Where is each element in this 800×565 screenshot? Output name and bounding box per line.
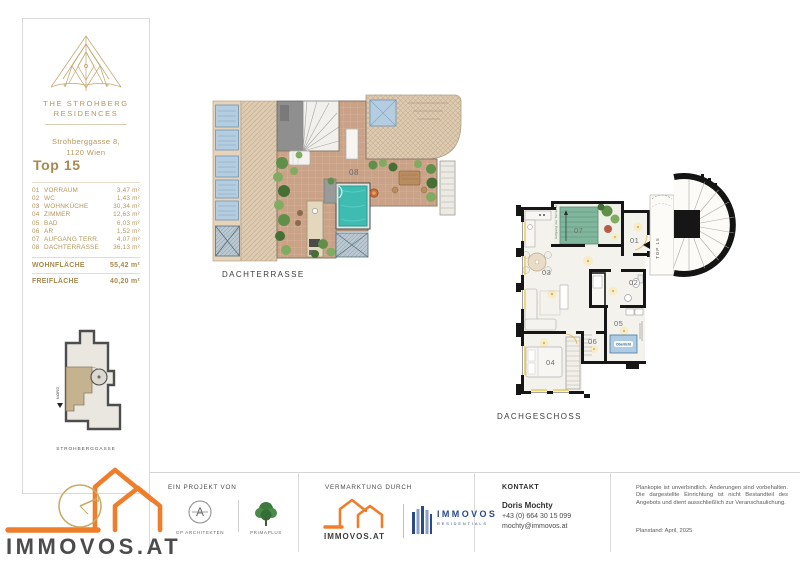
room-name: ZIMMER [44, 211, 113, 219]
residentials-bars-icon [412, 506, 432, 536]
oberlicht-label: Oberlicht [616, 343, 632, 347]
entrance-label: TOP 15 [655, 237, 660, 259]
disclaimer-text: Plankopie ist unverbindlich. Änderungen … [636, 485, 788, 507]
address-line-1: Strohberggasse 8, [23, 136, 149, 147]
brand-ornament-icon [41, 33, 131, 97]
room-07-terrace-stair: Aufgang zur Terrasse [554, 204, 621, 247]
contact-heading: KONTAKT [502, 484, 539, 491]
room-label-01: 01 [630, 236, 639, 245]
room-num: 08 [32, 244, 44, 252]
table-row: 01 VORRAUM 3,47 m² [32, 187, 140, 195]
table-row: 05 BAD 6,03 m² [32, 220, 140, 228]
room-area: 30,34 m² [113, 203, 140, 211]
room-area: 1,52 m² [117, 228, 140, 236]
total-outdoor-value: 40,20 m² [110, 278, 140, 285]
room-num: 07 [32, 236, 44, 244]
room-area: 12,63 m² [113, 211, 140, 219]
residentials-line-1: IMMOVOS [437, 510, 497, 519]
marketing-heading: VERMARKTUNG DURCH [325, 484, 412, 491]
table-row: 03 WOHNKÜCHE 30,34 m² [32, 203, 140, 211]
utility-core [591, 273, 605, 306]
total-living-value: 55,42 m² [110, 262, 140, 269]
floor-plan-label: DACHGESCHOSS [497, 412, 582, 421]
room-area: 36,13 m² [113, 244, 140, 252]
contact-name: Doris Mochty [502, 501, 553, 510]
terrace-stair-bulkhead [277, 101, 339, 151]
room-name: AUFGANG TERR. [44, 236, 117, 244]
room-name: WOHNKÜCHE [44, 203, 113, 211]
room-num: 01 [32, 187, 44, 195]
street-label: STROHBERGGASSE [23, 447, 149, 452]
terrace-skylight-strip [213, 101, 241, 261]
plan-date: Planstand: April, 2025 [636, 528, 692, 534]
room-label-04: 04 [546, 358, 555, 367]
spiral-staircase [673, 176, 734, 274]
footer-vline-4 [610, 472, 611, 552]
room-num: 02 [32, 195, 44, 203]
terrace-plan-label: DACHTERRASSE [222, 270, 305, 279]
contact-phone: +43 (0) 664 30 15 099 [502, 512, 571, 522]
room-label-07: 07 [574, 226, 583, 235]
room-table: 01 VORRAUM 3,47 m² 02 WC 1,43 m² 03 WOHN… [32, 182, 140, 285]
terrace-pool [336, 183, 370, 229]
project-address: Strohberggasse 8, 1120 Wien [23, 136, 149, 158]
marketing-logo-divider [403, 504, 404, 538]
table-row: 04 ZIMMER 12,63 m² [32, 211, 140, 219]
footer-vline-2 [298, 472, 299, 552]
north-arrow-icon [57, 403, 63, 408]
room-area: 4,07 m² [117, 236, 140, 244]
immovos-small-label: IMMOVOS.AT [324, 532, 385, 541]
partner-label: PRIMAPLUS [244, 530, 288, 535]
immovos-main-logo-text: IMMOVOS.AT [6, 534, 181, 560]
total-living-label: WOHNFLÄCHE [32, 262, 110, 269]
siteplan: NORD [36, 319, 136, 445]
table-row: 06 AR 1,52 m² [32, 228, 140, 236]
room-area: 6,03 m² [117, 220, 140, 228]
room-num: 05 [32, 220, 44, 228]
terrace-roof-hatch [241, 101, 277, 261]
table-divider-mid [32, 257, 140, 258]
partner-tree-logo-icon [246, 498, 286, 528]
footer-divider [150, 472, 800, 473]
room-name: BAD [44, 220, 117, 228]
immovos-house-logo-icon [322, 497, 398, 533]
room-num: 06 [32, 228, 44, 236]
room-num: 03 [32, 203, 44, 211]
room-area: 3,47 m² [117, 187, 140, 195]
table-row: 08 DACHTERRASSE 36,13 m² [32, 244, 140, 252]
floor-plan: Aufgang zur Terrasse [488, 163, 750, 411]
room-num: 04 [32, 211, 44, 219]
immovos-main-logo-icon: N [2, 462, 242, 534]
unit-title: Top 15 [33, 157, 81, 173]
room-label-06: 06 [588, 337, 597, 346]
total-living-row: WOHNFLÄCHE 55,42 m² [32, 262, 140, 269]
residentials-line-2: RESIDENTIALS [437, 521, 488, 527]
total-outdoor-row: FREIFLÄCHE 40,20 m² [32, 278, 140, 285]
room-name: AR [44, 228, 117, 236]
terrace-room-number: 08 [349, 168, 359, 177]
brand-name: THE STROHBERG RESIDENCES [23, 99, 149, 125]
room-name: DACHTERRASSE [44, 244, 113, 252]
room-label-03: 03 [542, 268, 551, 277]
brand-line-2: RESIDENCES [23, 109, 149, 119]
room-label-05: 05 [614, 319, 623, 328]
total-outdoor-label: FREIFLÄCHE [32, 278, 110, 285]
room-label-02: 02 [629, 278, 638, 287]
contact-email: mochty@immovos.at [502, 522, 567, 532]
room-name: VORRAUM [44, 187, 117, 195]
svg-text:N: N [95, 498, 99, 504]
brand-line-1: THE STROHBERG [23, 99, 149, 109]
siteplan-stair-dot [97, 375, 100, 378]
table-divider-bottom [32, 273, 140, 274]
terrace-lower-skylight [336, 233, 368, 257]
brochure-page: THE STROHBERG RESIDENCES Strohberggasse … [0, 0, 800, 565]
table-divider-top [32, 182, 140, 183]
room-area: 1,43 m² [117, 195, 140, 203]
table-row: 07 AUFGANG TERR. 4,07 m² [32, 236, 140, 244]
brand-divider [45, 124, 127, 125]
north-label: NORD [56, 386, 60, 399]
terrace-plan: 08 [203, 93, 471, 268]
sidebar: THE STROHBERG RESIDENCES Strohberggasse … [22, 18, 150, 494]
